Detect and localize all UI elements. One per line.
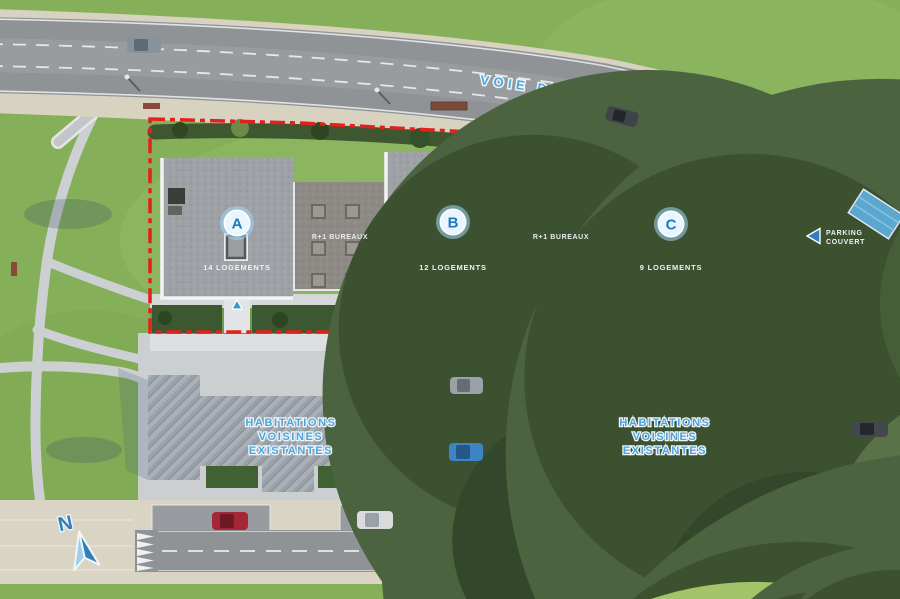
existing-left-label: HABITATIONS VOISINES EXISTANTES bbox=[245, 417, 336, 457]
parking-label-line2: COUVERT bbox=[826, 239, 865, 246]
existing-left-line2: VOISINES bbox=[259, 431, 324, 443]
bench bbox=[143, 103, 160, 109]
parking-label-line1: PARKING bbox=[826, 230, 863, 237]
existing-right-label: HABITATIONS VOISINES EXISTANTES bbox=[619, 417, 710, 457]
building-c-badge: C bbox=[654, 207, 688, 241]
car bbox=[357, 511, 393, 529]
building-a-letter: A bbox=[232, 216, 243, 233]
building-a-units: 14 LOGEMENTS bbox=[203, 263, 271, 272]
existing-left-line3: EXISTANTES bbox=[249, 445, 333, 457]
site-plan: VOIE DE CONTOURNEMENT bbox=[0, 0, 900, 599]
car bbox=[449, 443, 483, 461]
building-b-badge: B bbox=[436, 205, 470, 239]
car bbox=[212, 512, 248, 530]
car bbox=[450, 377, 483, 394]
building-a-badge: A bbox=[220, 206, 254, 240]
building-c-units: 9 LOGEMENTS bbox=[640, 263, 703, 272]
existing-left-line1: HABITATIONS bbox=[245, 417, 336, 429]
office-right-label: R+1 BUREAUX bbox=[533, 234, 589, 241]
existing-right-line2: VOISINES bbox=[633, 431, 698, 443]
bench bbox=[11, 262, 17, 276]
building-b-letter: B bbox=[448, 215, 459, 232]
site-plan-canvas: VOIE DE CONTOURNEMENT bbox=[0, 0, 900, 599]
car bbox=[127, 37, 161, 53]
bench bbox=[431, 102, 467, 110]
existing-right-line3: EXISTANTES bbox=[623, 445, 707, 457]
office-left-label: R+1 BUREAUX bbox=[312, 234, 368, 241]
existing-right-line1: HABITATIONS bbox=[619, 417, 710, 429]
car bbox=[852, 421, 888, 437]
building-b-units: 12 LOGEMENTS bbox=[419, 263, 487, 272]
building-c-letter: C bbox=[666, 217, 677, 234]
